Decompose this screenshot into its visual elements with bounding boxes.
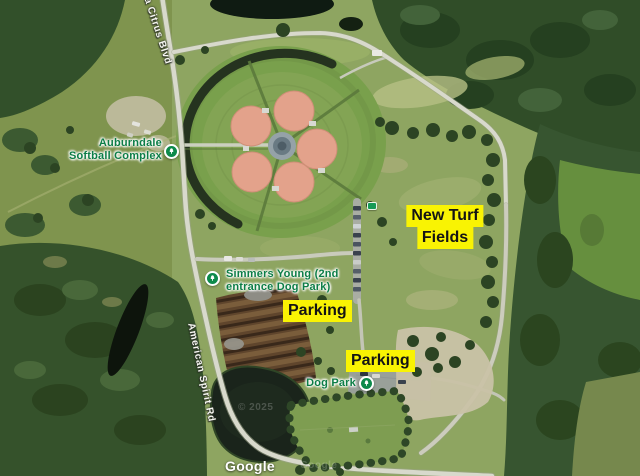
tree-glyph [208, 274, 217, 283]
annotation-parking-north: Parking [283, 300, 352, 322]
tree-glyph [167, 147, 176, 156]
tree-glyph [362, 379, 371, 388]
annotation-new-turf-fields: New Turf Fields [406, 205, 483, 249]
annotation-line: Parking [283, 300, 352, 322]
annotation-line: New Turf [406, 205, 483, 227]
google-logo[interactable]: Google [225, 458, 275, 474]
imagery-ghost-watermark: Google [300, 460, 337, 471]
satellite-map[interactable]: Auburndale Softball Complex Simmers Youn… [0, 0, 640, 476]
annotation-line: Fields [417, 227, 473, 249]
terrain-artwork [0, 0, 640, 476]
poi-label-dog-park[interactable]: Dog Park [298, 377, 356, 390]
imagery-copyright-watermark: © 2025 [238, 402, 273, 413]
park-tree-icon[interactable] [359, 376, 374, 391]
poi-label-line: Simmers Young (2nd [226, 268, 339, 281]
park-tree-icon[interactable] [164, 144, 179, 159]
poi-label-line: Dog Park [298, 377, 356, 390]
poi-label-line: entrance Dog Park) [226, 281, 339, 294]
poi-label-line: Softball Complex [58, 150, 162, 163]
park-sign-icon[interactable] [367, 202, 377, 210]
dog-park-area [290, 391, 410, 468]
annotation-line: Parking [346, 350, 415, 372]
poi-label-softball-complex[interactable]: Auburndale Softball Complex [58, 137, 162, 163]
park-tree-icon[interactable] [205, 271, 220, 286]
poi-label-simmers-young[interactable]: Simmers Young (2nd entrance Dog Park) [226, 268, 339, 294]
annotation-parking-south: Parking [346, 350, 415, 372]
poi-label-line: Auburndale [58, 137, 162, 150]
